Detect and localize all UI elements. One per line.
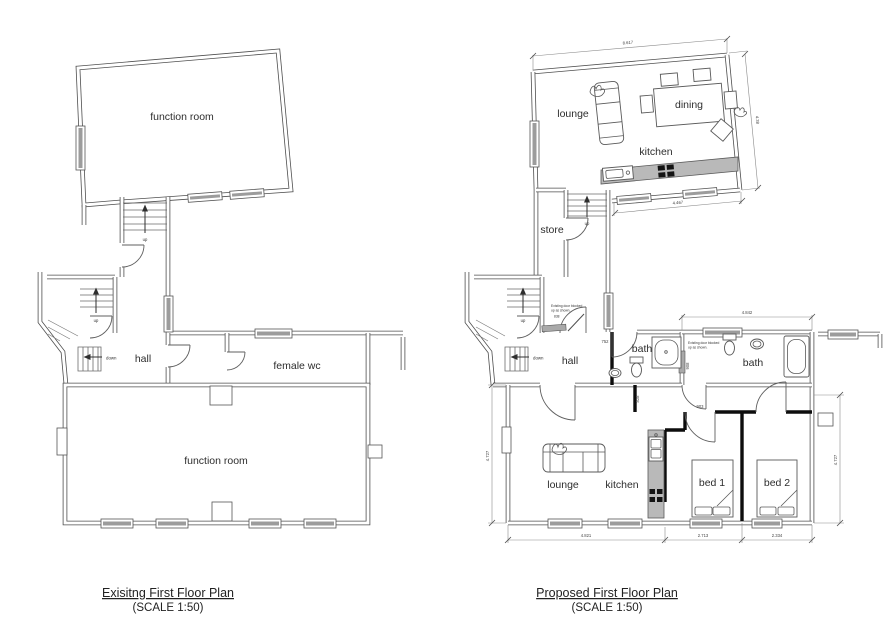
- door-arc: [540, 385, 575, 420]
- existing-exterior-walls: [40, 51, 403, 523]
- stair-up-label: up: [143, 237, 148, 242]
- door-width-number: 752: [602, 339, 610, 344]
- stair-down-label: down: [106, 356, 117, 361]
- dimension-line-right-lower: 4.727: [814, 392, 844, 526]
- wall-step: [502, 427, 511, 453]
- proposed-caption: Proposed First Floor Plan (SCALE 1:50): [536, 586, 678, 614]
- window-icon: [255, 329, 292, 338]
- wall-tab: [368, 445, 382, 458]
- proposed-plan-title: Proposed First Floor Plan: [536, 586, 678, 600]
- existing-chimney-breasts: [57, 386, 382, 521]
- drawing-sheet: up up down function room hall female wc …: [0, 0, 886, 634]
- bathtub-icon: [784, 336, 809, 377]
- window-icon: [156, 519, 188, 528]
- room-label-bath-right: bath: [743, 357, 764, 369]
- svg-text:4.727: 4.727: [833, 454, 838, 465]
- shower-icon: [652, 337, 681, 368]
- door-width-number: 908: [685, 362, 690, 370]
- window-icon: [101, 519, 133, 528]
- window-icon: [617, 194, 652, 205]
- svg-text:2.713: 2.713: [698, 533, 709, 538]
- door-arc: [168, 345, 190, 367]
- room-label-function-room-top: function room: [150, 111, 214, 123]
- room-label-lounge-top: lounge: [557, 108, 589, 120]
- existing-plan-title: Exisitng First Floor Plan: [102, 586, 234, 600]
- old-door-leaf: [568, 314, 584, 331]
- room-label-function-room-bottom: function room: [184, 455, 248, 467]
- svg-text:8.617: 8.617: [622, 40, 634, 46]
- existing-caption: Exisitng First Floor Plan (SCALE 1:50): [102, 586, 234, 614]
- toilet-icon: [630, 357, 643, 377]
- dimension-line-left: 4.727: [485, 382, 506, 526]
- basin-icon: [609, 369, 621, 378]
- proposed-top-furniture: [590, 66, 747, 184]
- room-label-kitchen-top: kitchen: [639, 146, 672, 158]
- proposed-bottom-furniture: [543, 430, 797, 518]
- window-icon: [164, 296, 173, 332]
- room-label-hall: hall: [562, 355, 578, 367]
- wall-tab: [818, 413, 833, 426]
- proposed-stairs-corridor: up: [567, 194, 607, 226]
- door-arc: [122, 245, 144, 267]
- room-label-bed-2: bed 2: [764, 477, 790, 489]
- door-width-number: 828: [635, 395, 640, 403]
- blocked-door-number: 838: [554, 315, 560, 319]
- room-label-female-wc: female wc: [273, 360, 320, 372]
- kitchen-sink-icon: [602, 166, 633, 182]
- chair-icon: [693, 68, 711, 81]
- stair-up-label: up: [94, 318, 99, 323]
- blocked-door-note: Existing door blocked: [551, 304, 583, 308]
- room-label-store: store: [540, 224, 564, 236]
- existing-room-labels: function room hall female wc function ro…: [135, 111, 321, 467]
- window-icon: [530, 121, 539, 167]
- svg-text:4.727: 4.727: [485, 450, 490, 461]
- window-icon: [683, 188, 718, 199]
- blocked-door-note: Existing door blocked: [688, 341, 720, 345]
- chair-icon: [660, 73, 678, 86]
- svg-text:4.821: 4.821: [581, 533, 592, 538]
- window-icon: [828, 330, 858, 339]
- proposed-bath-right-fixtures: [723, 334, 809, 377]
- proposed-plan: up up down: [467, 36, 880, 614]
- room-label-bath-middle: bath: [632, 343, 653, 355]
- room-label-lounge-bottom: lounge: [547, 479, 579, 491]
- blocked-door-note: up as shown.: [551, 309, 571, 313]
- chimney-breast: [212, 502, 232, 521]
- dining-set-icon: [638, 66, 738, 128]
- toilet-icon: [723, 334, 736, 355]
- window-icon: [752, 519, 782, 528]
- window-icon: [608, 519, 642, 528]
- decor-squiggle: [734, 108, 747, 117]
- window-icon: [304, 519, 336, 528]
- existing-plan: up up down function room hall female wc …: [40, 51, 403, 614]
- window-icon: [76, 126, 85, 170]
- svg-text:4.38: 4.38: [755, 116, 761, 125]
- window-icon: [604, 293, 613, 329]
- room-label-dining: dining: [675, 99, 703, 111]
- chimney-breast: [210, 386, 232, 405]
- sofa-icon: [594, 81, 624, 145]
- existing-plan-scale: (SCALE 1:50): [133, 602, 204, 614]
- room-label-kitchen-bottom: kitchen: [605, 479, 638, 491]
- blocked-door-note: up as shown.: [688, 346, 708, 350]
- door-arc: [227, 352, 245, 370]
- proposed-plan-scale: (SCALE 1:50): [572, 602, 643, 614]
- room-label-hall: hall: [135, 353, 151, 365]
- chair-icon: [640, 95, 653, 113]
- dimension-line-bath: 4.842: [679, 310, 815, 330]
- blocked-door-bar: [542, 324, 566, 332]
- chair-icon: [724, 91, 737, 109]
- room-label-bed-1: bed 1: [699, 477, 725, 489]
- window-icon: [548, 519, 582, 528]
- window-icon: [230, 189, 265, 200]
- wall-step: [57, 428, 67, 455]
- door-arc: [685, 412, 715, 442]
- stair-down-label: down: [533, 356, 544, 361]
- stair-up-label: up: [521, 318, 526, 323]
- svg-text:4.467: 4.467: [672, 200, 684, 206]
- window-icon: [690, 519, 722, 528]
- door-width-number: 903: [697, 404, 705, 409]
- window-icon: [249, 519, 281, 528]
- svg-text:2.334: 2.334: [772, 533, 783, 538]
- existing-stairs-corridor: up: [123, 203, 167, 242]
- basin-icon: [751, 339, 764, 349]
- floor-plans-svg: up up down function room hall female wc …: [0, 0, 886, 634]
- svg-text:4.842: 4.842: [742, 310, 753, 315]
- window-icon: [188, 192, 223, 203]
- kitchen-sink-icon: [649, 434, 663, 461]
